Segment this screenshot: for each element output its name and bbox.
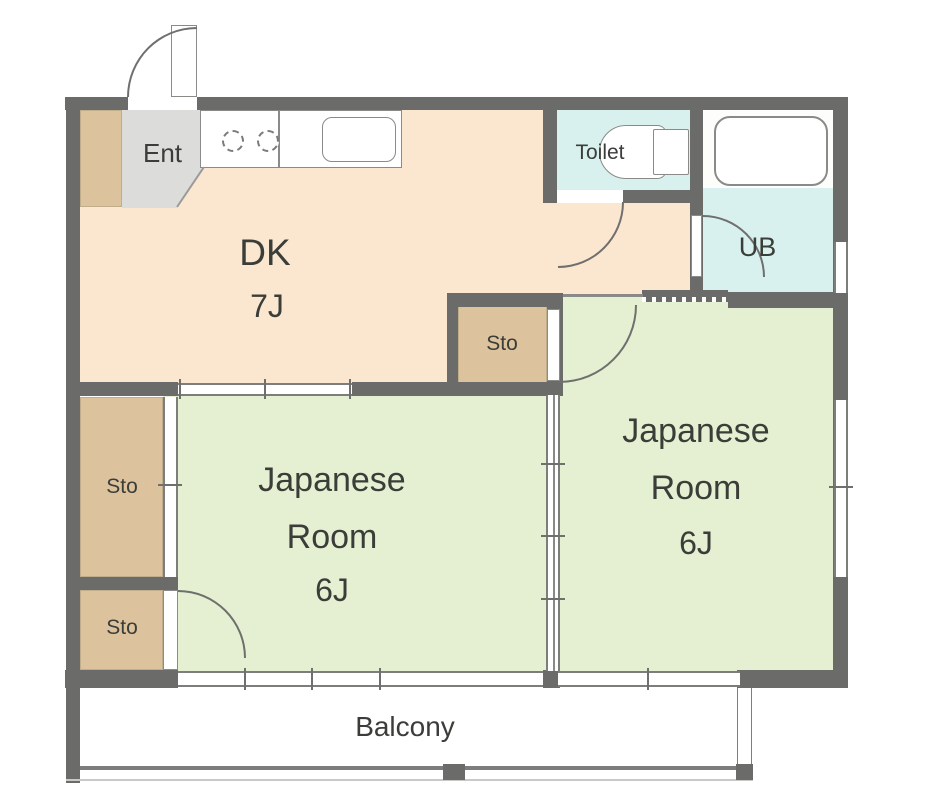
entrance-label: Ent xyxy=(122,138,203,169)
partition-tick xyxy=(179,379,181,399)
wall-bottom-left-segment xyxy=(65,670,178,688)
dk-label: DK xyxy=(215,232,315,274)
balcony-window-right xyxy=(558,671,740,687)
balcony-corner-block xyxy=(736,764,753,780)
balcony-divider-block xyxy=(443,764,465,780)
floor-plan: Ent DK 7J Toilet UB Sto Sto Sto Japanese… xyxy=(0,0,927,809)
right-room-doorway-header xyxy=(563,294,643,297)
wall-dk-bottom-right xyxy=(352,382,563,396)
toilet-tank xyxy=(653,129,689,175)
bathtub xyxy=(714,116,828,186)
japanese-room-left-label: Japanese Room xyxy=(237,452,427,566)
wall-dk-bottom-left xyxy=(66,382,178,396)
right-room-window xyxy=(834,400,848,577)
stove-burner-icon xyxy=(257,130,279,152)
japanese-room-right-size: 6J xyxy=(601,523,791,563)
fusuma-room-divider xyxy=(546,395,560,671)
balcony-label: Balcony xyxy=(305,711,505,743)
entrance-doorway xyxy=(128,97,197,110)
fusuma-center-line xyxy=(553,395,555,671)
partition-tick xyxy=(541,598,565,600)
window-tick xyxy=(379,668,381,690)
right-room-threshold xyxy=(642,290,728,302)
stove-burner-icon xyxy=(222,130,244,152)
partition-tick xyxy=(264,379,266,399)
window-tick xyxy=(244,668,246,690)
unit-bath-label: UB xyxy=(715,232,800,263)
storage-upper-sliding-door xyxy=(163,397,178,577)
storage-lower-label: Sto xyxy=(82,616,162,640)
partition-tick xyxy=(349,379,351,399)
toilet-label: Toilet xyxy=(555,141,645,165)
balcony-railing-line xyxy=(80,766,752,770)
kitchen-sink xyxy=(322,117,396,162)
storage-upper-label: Sto xyxy=(82,475,162,499)
entrance-door-swing-arc xyxy=(127,27,197,97)
wall-bottom-right-segment xyxy=(737,670,848,688)
wall-right xyxy=(833,97,848,688)
unit-bath-door-leaf xyxy=(691,215,702,277)
storage-lower-door-leaf xyxy=(163,590,178,670)
balcony-outer-edge xyxy=(66,779,753,781)
window-tick xyxy=(829,486,853,488)
dk-size-label: 7J xyxy=(217,288,317,325)
wall-unit-bath-bottom xyxy=(728,292,833,308)
shoe-cabinet xyxy=(80,110,122,207)
japanese-room-right-label: Japanese Room xyxy=(601,403,791,517)
wall-storage-left-mid xyxy=(66,577,178,590)
window-tick xyxy=(311,668,313,690)
wall-storage-mid-left xyxy=(447,293,458,396)
balcony-window-left xyxy=(178,671,543,687)
partition-tick xyxy=(541,535,565,537)
partition-tick xyxy=(541,463,565,465)
window-tick xyxy=(647,668,649,690)
storage-mid-label: Sto xyxy=(462,332,542,356)
unit-bath-window xyxy=(834,242,848,293)
wall-storage-mid-top xyxy=(447,293,563,307)
japanese-room-left-size: 6J xyxy=(237,570,427,610)
